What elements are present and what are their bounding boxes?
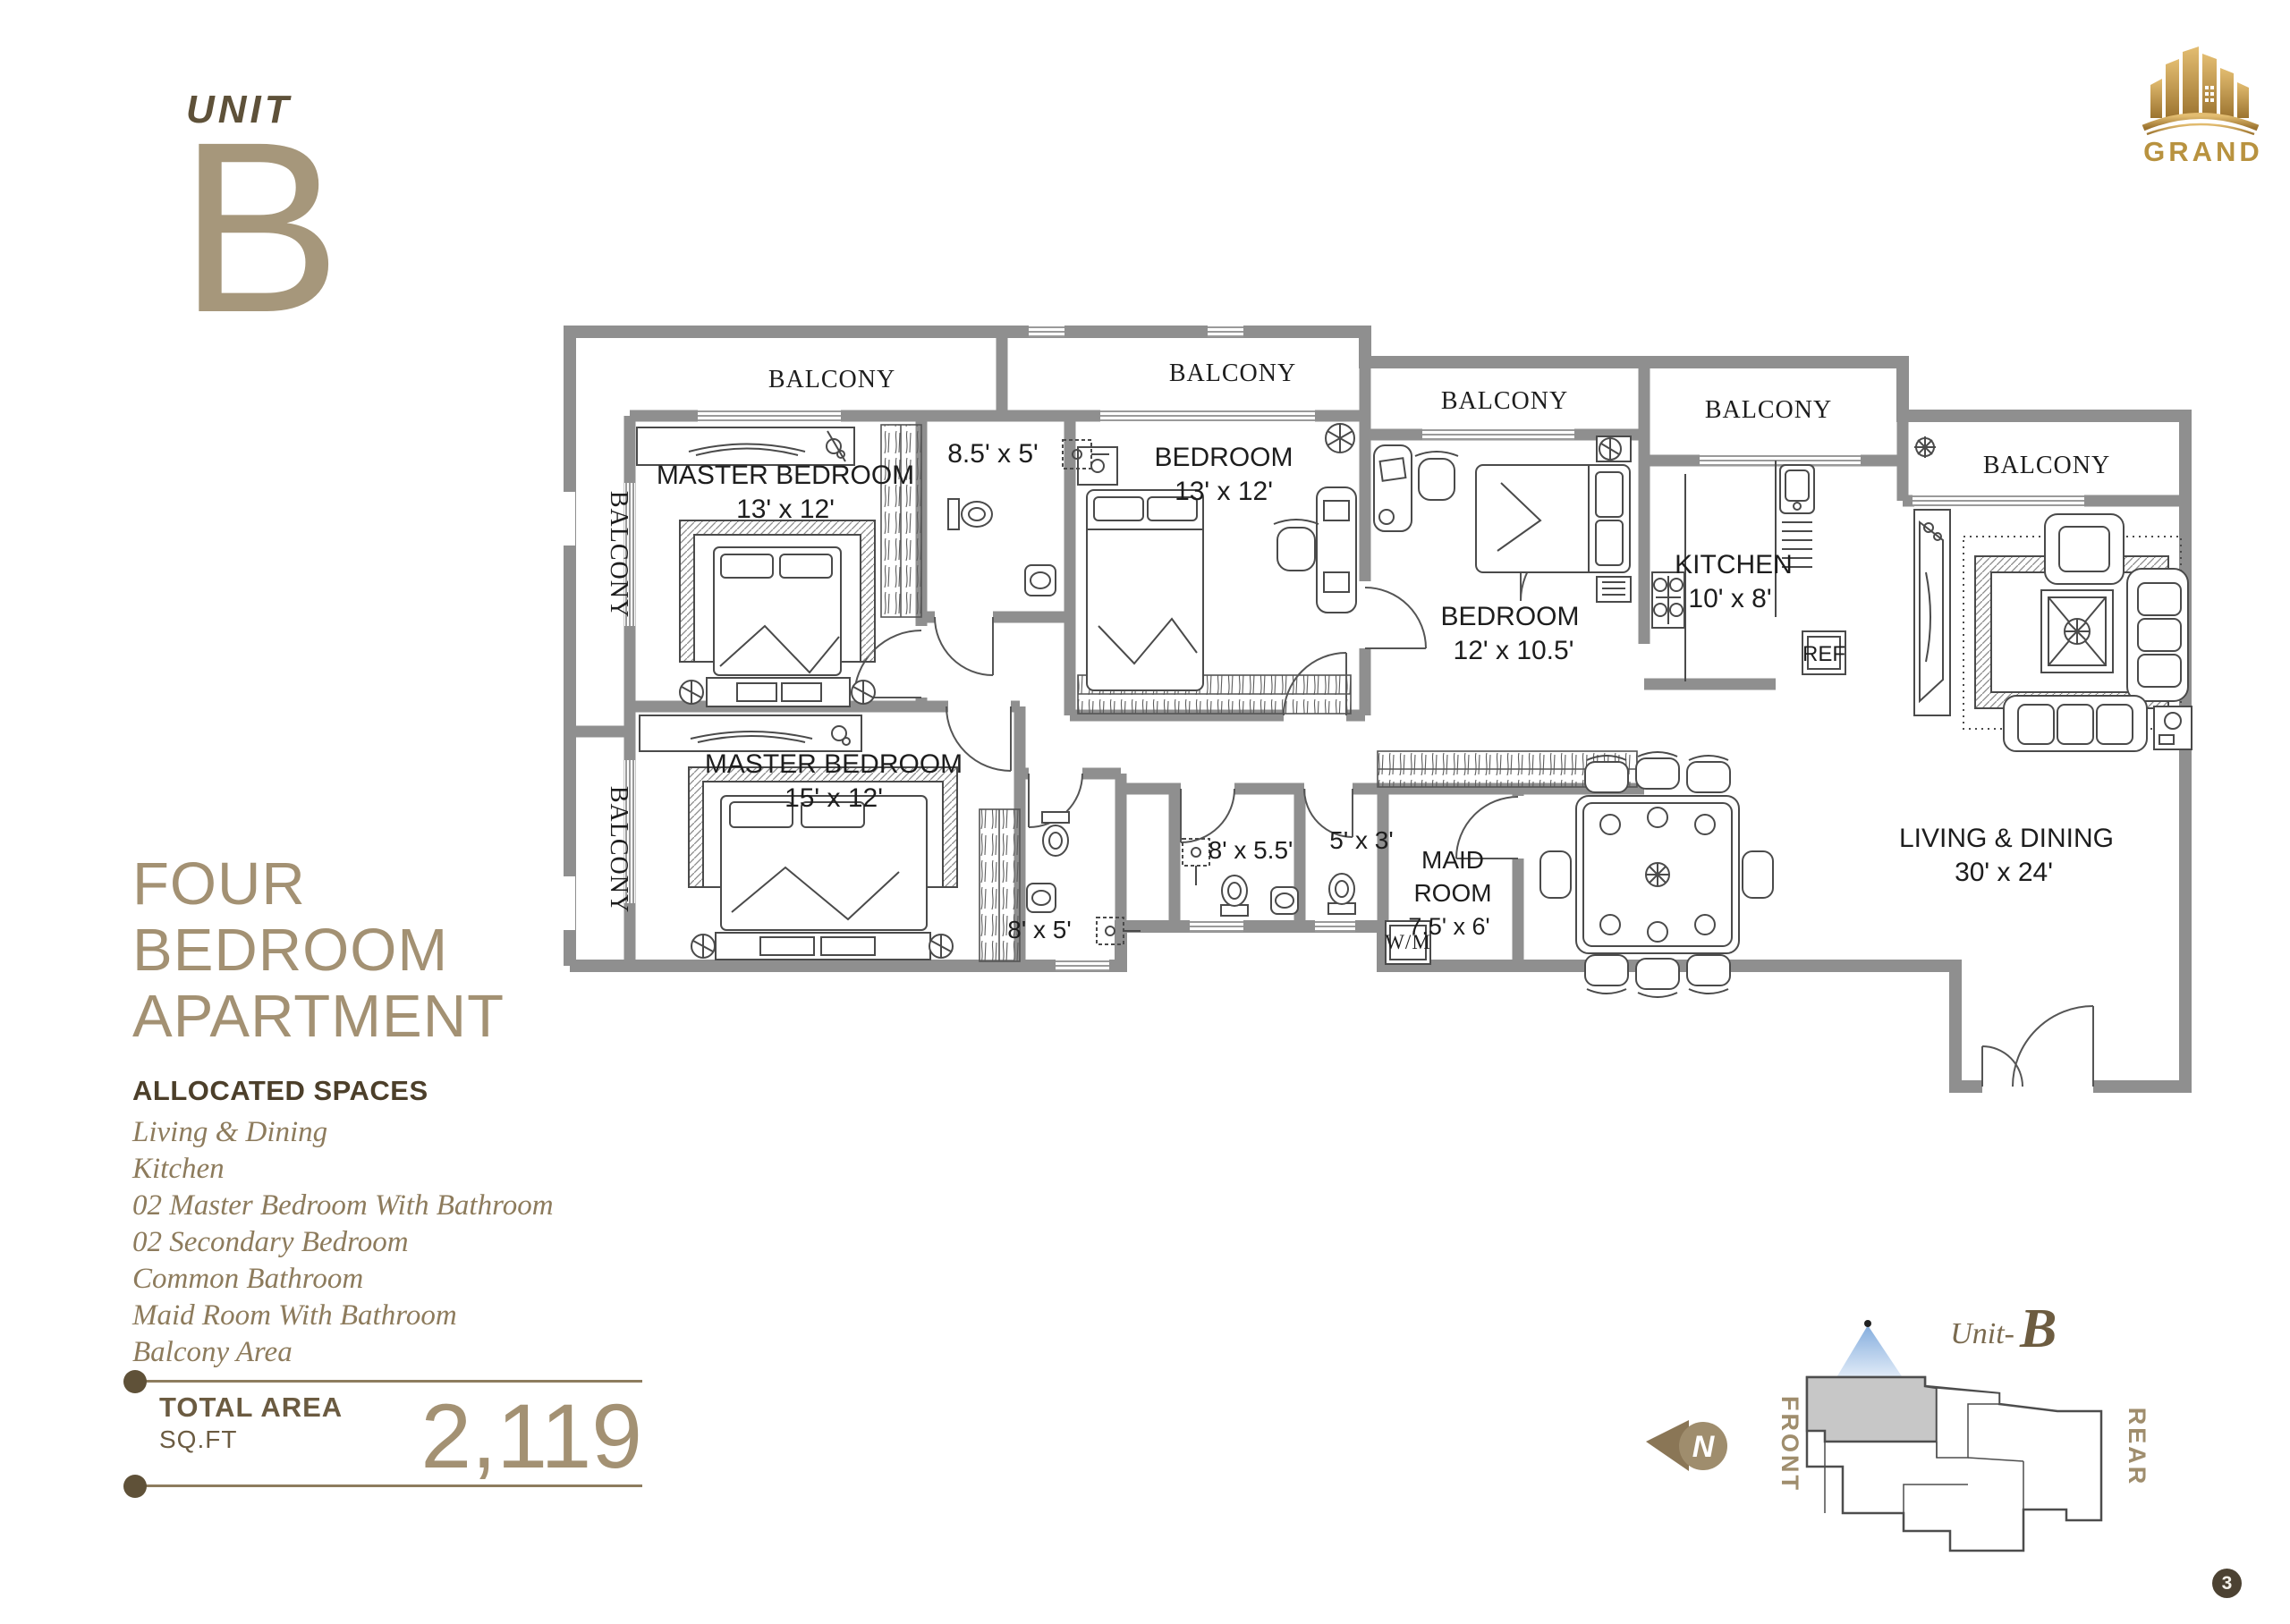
title-line-2: BEDROOM: [132, 918, 505, 984]
balcony-label: BALCONY: [1169, 359, 1296, 387]
apartment-title: FOUR BEDROOM APARTMENT: [132, 851, 505, 1050]
room-dim: 12' x 10.5': [1454, 636, 1574, 665]
title-line-1: FOUR: [132, 851, 505, 918]
allocated-spaces-list: Living & Dining Kitchen 02 Master Bedroo…: [132, 1114, 554, 1371]
brochure-page: BALCONY BALCONY BALCONY BALCONY BALCONY …: [0, 0, 2290, 1624]
divider-line: [134, 1484, 642, 1487]
room-dim: 5' x 3': [1329, 826, 1393, 854]
north-label: N: [1692, 1430, 1716, 1464]
room-label: MAID: [1421, 846, 1484, 874]
rear-label: REAR: [2124, 1408, 2150, 1487]
room-label: BEDROOM: [1154, 443, 1293, 472]
balcony-label: BALCONY: [1441, 387, 1568, 415]
list-item: Living & Dining: [132, 1114, 554, 1151]
grand-logo-text: GRAND: [2138, 136, 2269, 168]
front-label: FRONT: [1777, 1396, 1803, 1493]
room-label: LIVING & DINING: [1899, 824, 2114, 853]
room-label: ROOM: [1413, 879, 1491, 907]
total-area-label: TOTAL AREA: [159, 1391, 343, 1424]
list-item: Maid Room With Bathroom: [132, 1298, 554, 1334]
balcony-label: BALCONY: [605, 786, 632, 913]
unit-letter: B: [179, 106, 341, 349]
total-area-unit: SQ.FT: [159, 1425, 237, 1454]
room-dim: 8' x 5': [1007, 916, 1071, 943]
list-item: Balcony Area: [132, 1334, 554, 1371]
highlighted-unit: [1807, 1377, 1937, 1442]
divider-dot: [123, 1370, 147, 1393]
room-label: KITCHEN: [1675, 550, 1793, 579]
list-item: 02 Secondary Bedroom: [132, 1224, 554, 1261]
room-dim: 15' x 12': [785, 783, 883, 813]
room-dim: 7.5' x 6': [1408, 913, 1489, 940]
ref-label: REF: [1802, 642, 1845, 666]
north-compass: N: [1646, 1420, 1727, 1471]
unit-locator: N FRONT REAR Unit- B: [1646, 1298, 2150, 1551]
divider-line: [134, 1380, 642, 1383]
balcony-label: BALCONY: [1983, 452, 2110, 479]
room-label: MASTER BEDROOM: [705, 749, 963, 779]
balcony-label: BALCONY: [768, 366, 895, 393]
total-area-value: 2,119: [374, 1384, 642, 1489]
balcony-label: BALCONY: [1705, 396, 1832, 424]
room-dim: 13' x 12': [1175, 477, 1273, 506]
list-item: 02 Master Bedroom With Bathroom: [132, 1188, 554, 1224]
list-item: Kitchen: [132, 1151, 554, 1188]
room-dim: 8.5' x 5': [947, 439, 1039, 469]
title-line-3: APARTMENT: [132, 984, 505, 1050]
unit-ref-letter: B: [2019, 1298, 2057, 1359]
allocated-spaces-heading: ALLOCATED SPACES: [132, 1075, 428, 1107]
page-number-badge: 3: [2212, 1569, 2242, 1598]
unit-ref-prefix: Unit-: [1950, 1317, 2014, 1350]
room-dim: 8' x 5.5': [1209, 836, 1293, 864]
room-dim: 13' x 12': [736, 495, 835, 524]
balcony-label: BALCONY: [605, 491, 632, 618]
divider-dot: [123, 1475, 147, 1498]
list-item: Common Bathroom: [132, 1261, 554, 1298]
grand-logo-icon: [2143, 47, 2258, 134]
room-label: BEDROOM: [1440, 602, 1579, 631]
room-dim: 30' x 24': [1955, 858, 2053, 887]
room-label: MASTER BEDROOM: [657, 461, 914, 490]
room-dim: 10' x 8': [1688, 584, 1771, 613]
